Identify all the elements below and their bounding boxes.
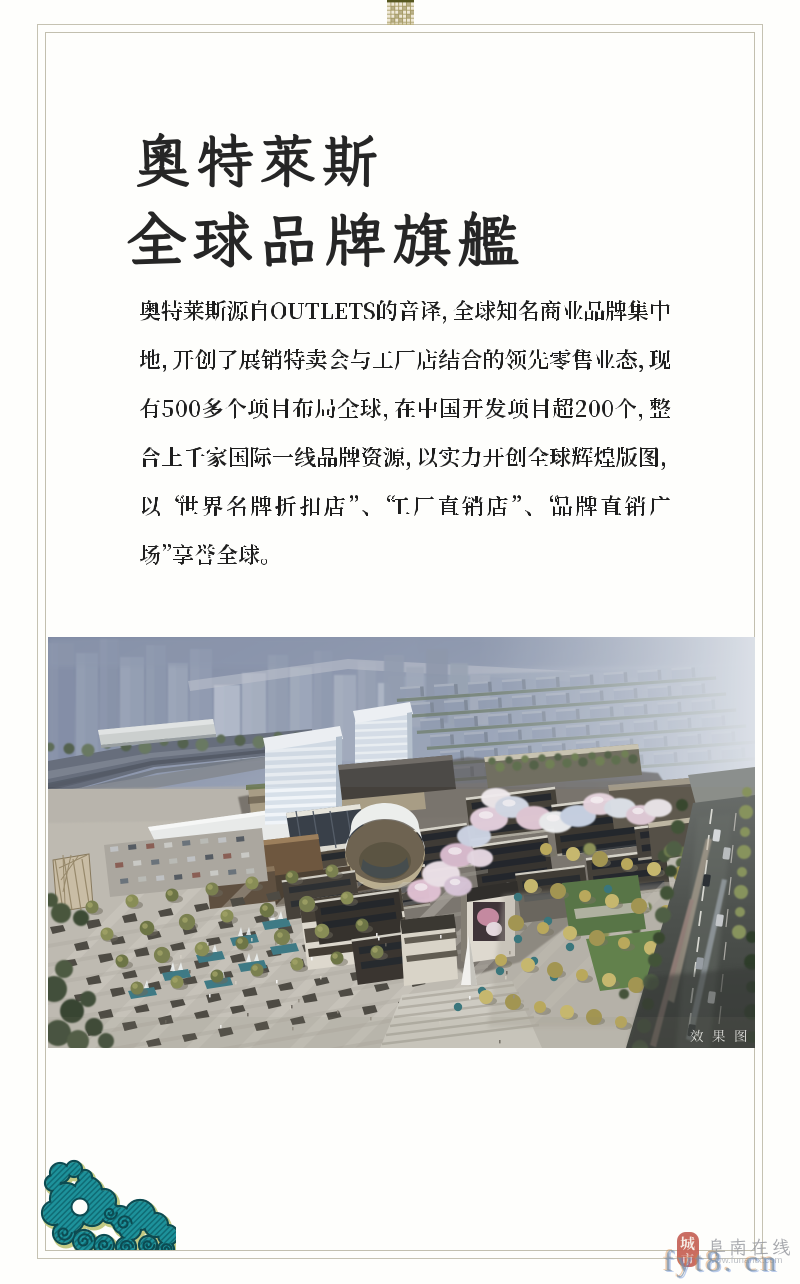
svg-text:fyt8. cn: fyt8. cn xyxy=(664,1245,780,1278)
